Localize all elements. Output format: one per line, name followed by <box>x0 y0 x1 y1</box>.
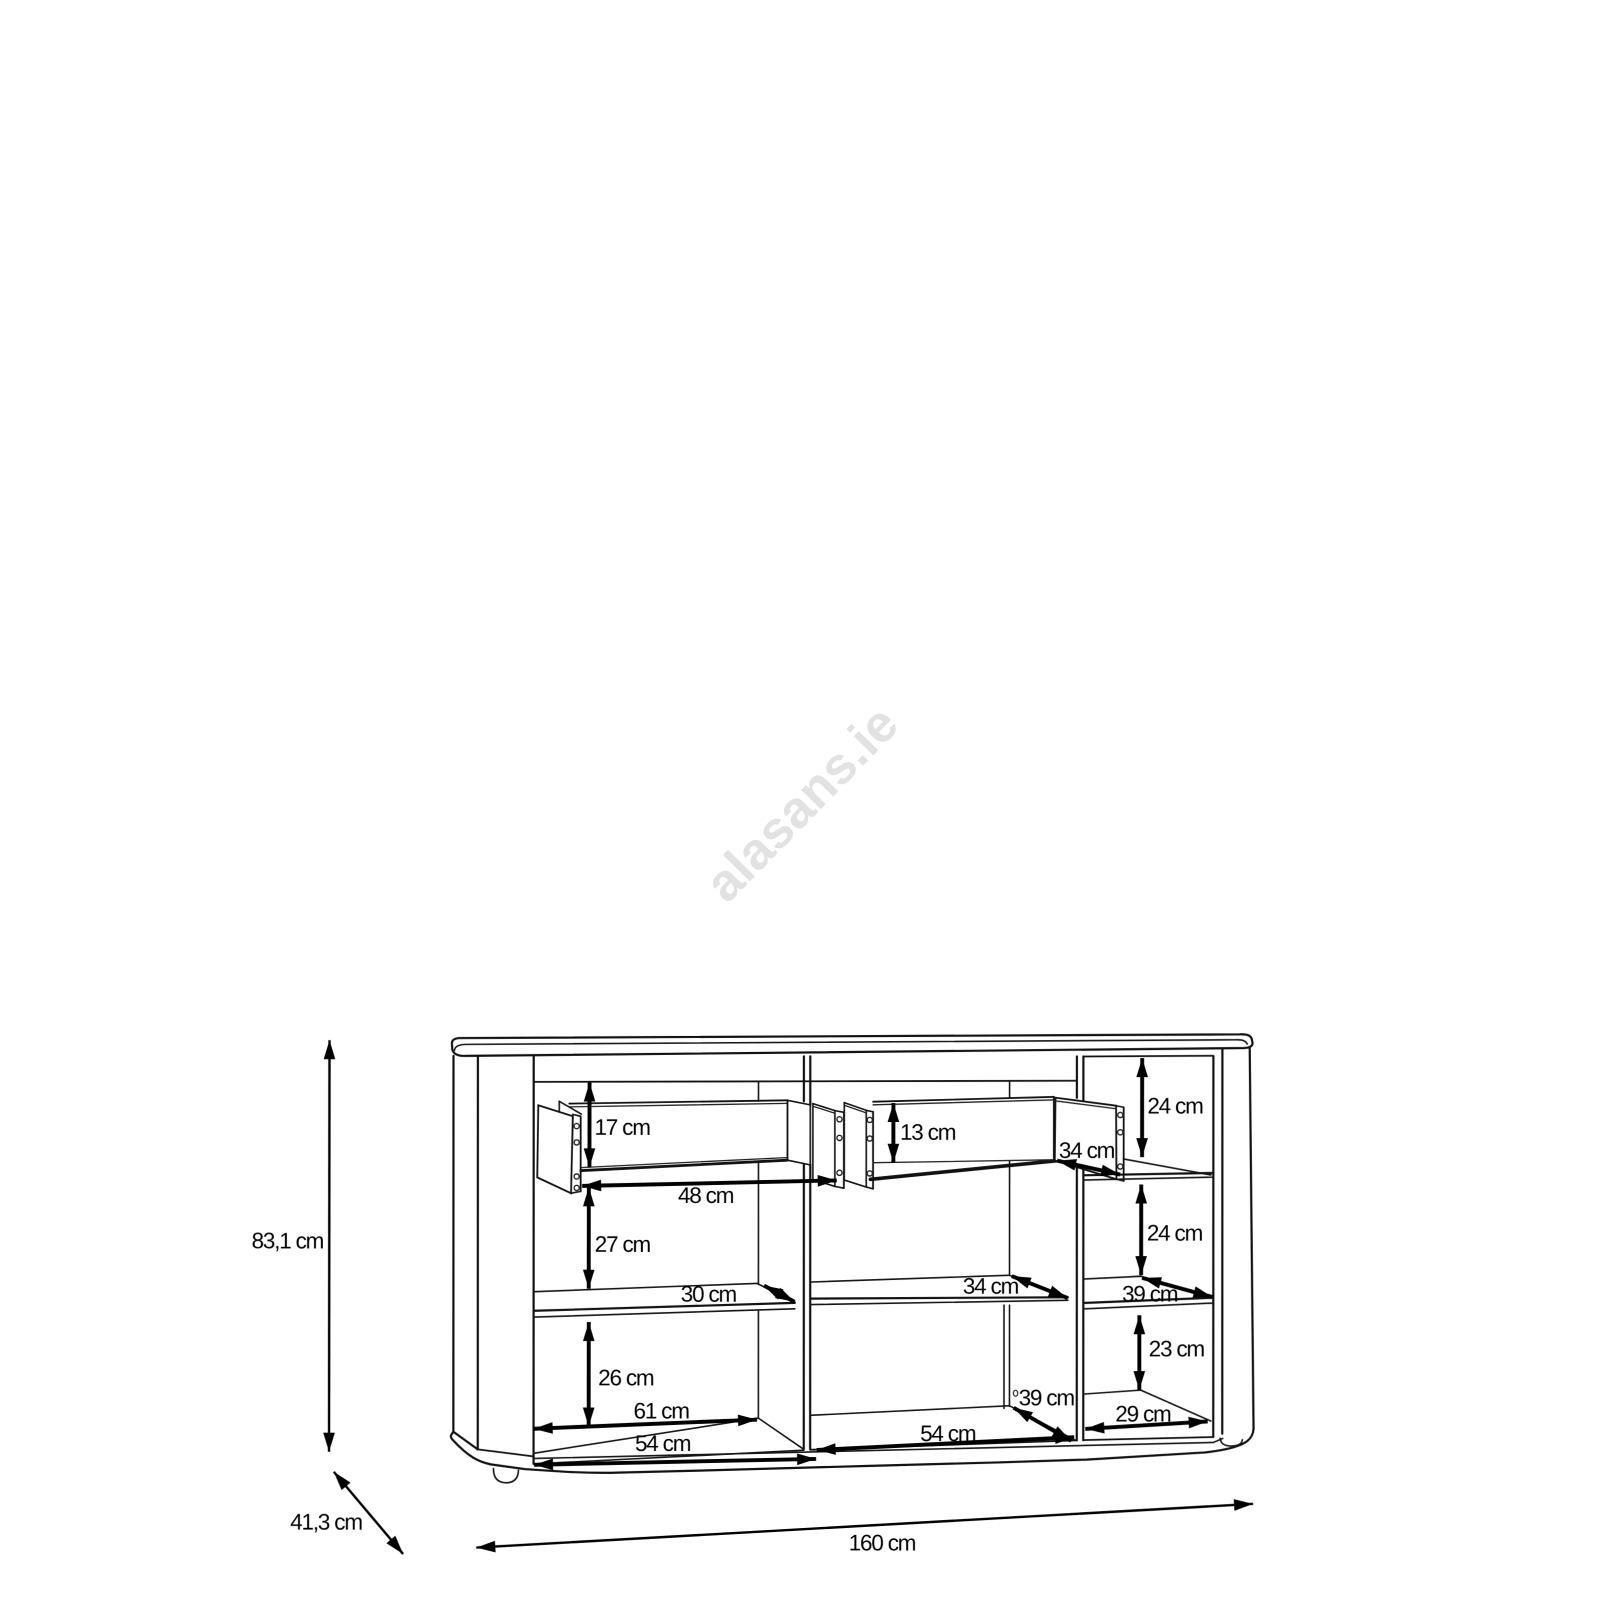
svg-text:160 cm: 160 cm <box>849 1530 916 1555</box>
svg-text:54 cm: 54 cm <box>635 1431 691 1456</box>
svg-text:83,1 cm: 83,1 cm <box>252 1228 324 1253</box>
svg-text:26 cm: 26 cm <box>598 1365 654 1390</box>
svg-text:29 cm: 29 cm <box>1115 1401 1171 1426</box>
svg-text:34 cm: 34 cm <box>963 1274 1019 1299</box>
svg-text:24 cm: 24 cm <box>1147 1221 1203 1246</box>
svg-text:39 cm: 39 cm <box>1019 1385 1075 1410</box>
svg-text:54 cm: 54 cm <box>920 1421 976 1446</box>
svg-text:alasans.ie: alasans.ie <box>694 695 909 913</box>
svg-text:48 cm: 48 cm <box>678 1183 734 1208</box>
svg-text:24 cm: 24 cm <box>1147 1093 1203 1118</box>
svg-text:41,3 cm: 41,3 cm <box>290 1509 362 1534</box>
svg-text:17 cm: 17 cm <box>594 1115 650 1140</box>
svg-text:39 cm: 39 cm <box>1122 1281 1178 1306</box>
svg-text:30 cm: 30 cm <box>681 1282 737 1307</box>
svg-text:27 cm: 27 cm <box>595 1232 651 1257</box>
svg-text:34 cm: 34 cm <box>1059 1138 1115 1163</box>
svg-text:61 cm: 61 cm <box>634 1398 690 1423</box>
svg-text:13 cm: 13 cm <box>900 1120 956 1145</box>
svg-text:23 cm: 23 cm <box>1149 1336 1205 1361</box>
